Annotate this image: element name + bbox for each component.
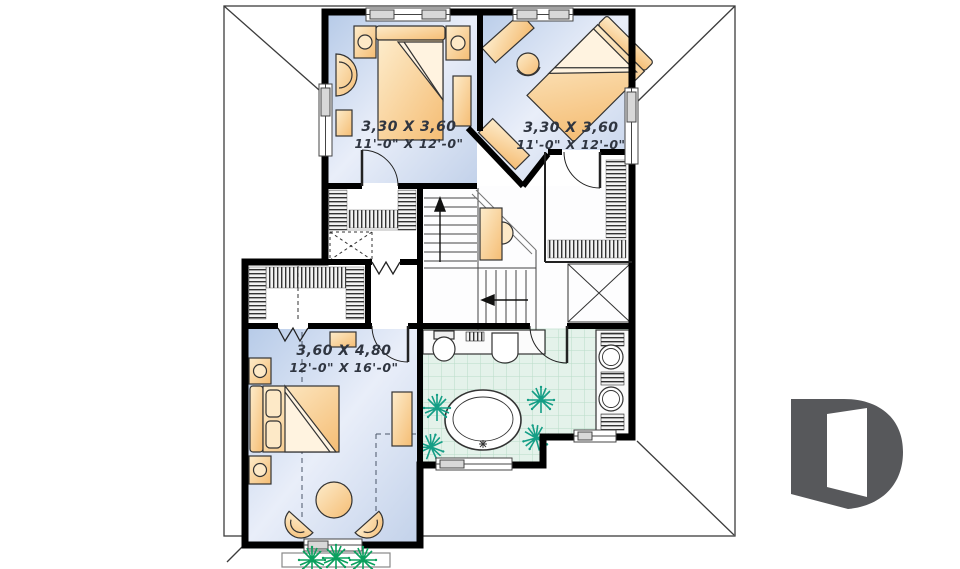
desk-chair-icon	[517, 53, 539, 75]
vanity-drawer	[601, 414, 624, 430]
floor-plan-drawing: 3,30 X 3,60 11'-0" X 12'-0" 3,30 X 3,60 …	[0, 0, 960, 569]
roof-hip-top-right	[637, 6, 735, 102]
bedroom-1-dim-imperial: 11'-0" X 12'-0"	[354, 136, 463, 151]
bedroom1-closet-shelf-left	[329, 190, 347, 230]
tub-faucet	[479, 440, 487, 448]
bedroom2-closet-rod	[548, 240, 626, 258]
drummond-d-logo	[791, 399, 903, 509]
bed-headboard	[376, 26, 445, 40]
walkin-closet-shelf-left	[249, 267, 266, 319]
vanity-drawer	[466, 332, 484, 341]
door-bedroom2	[564, 152, 600, 188]
walkin-closet-shelf-right	[346, 267, 364, 319]
window-bedroom2-right	[625, 88, 638, 164]
lamp-icon	[451, 36, 465, 50]
bifold-door-walkin	[372, 262, 400, 274]
bedroom1-closet-shelf-right	[398, 190, 416, 230]
bedroom-1-dim-metric: 3,30 X 3,60	[361, 119, 456, 135]
side-table	[336, 110, 352, 136]
walkin-closet-rod	[266, 267, 346, 288]
roof-hip-bottom-right	[637, 441, 734, 535]
round-table-icon	[316, 482, 352, 518]
toilet-icon	[433, 337, 455, 361]
dresser	[392, 392, 412, 446]
bedroom-2-dim-metric: 3,30 X 3,60	[523, 120, 618, 136]
lamp-icon	[254, 365, 267, 378]
vanity-drawer	[601, 372, 624, 385]
window-bath-bottom-right	[574, 430, 616, 442]
bedroom2-closet-shelf	[606, 160, 626, 238]
vanity-drawer	[601, 333, 624, 346]
lamp-icon	[358, 35, 372, 49]
master-dim-imperial: 12'-0" X 16'-0"	[289, 360, 398, 375]
sink-icon	[492, 333, 518, 363]
bedroom1-closet-rod	[349, 210, 398, 228]
window-bath-bottom-left	[436, 458, 512, 470]
bathtub-basin	[453, 397, 513, 441]
master-dim-metric: 3,60 X 4,80	[296, 343, 391, 359]
window-bedroom1-top	[366, 8, 450, 21]
lamp-icon	[254, 464, 267, 477]
window-bedroom2-top	[513, 8, 573, 21]
linen-closet-dashed-box	[330, 232, 372, 260]
pillow	[266, 421, 281, 448]
bedroom-2-dim-imperial: 11'-0" X 12'-0"	[516, 137, 625, 152]
bed-headboard	[250, 386, 263, 452]
pillow	[266, 390, 281, 417]
desk-icon	[480, 208, 502, 260]
window-bedroom1-left	[319, 84, 332, 156]
roof-hip-top-left	[224, 6, 327, 97]
floor-plan-page: 3,30 X 3,60 11'-0" X 12'-0" 3,30 X 3,60 …	[0, 0, 960, 569]
